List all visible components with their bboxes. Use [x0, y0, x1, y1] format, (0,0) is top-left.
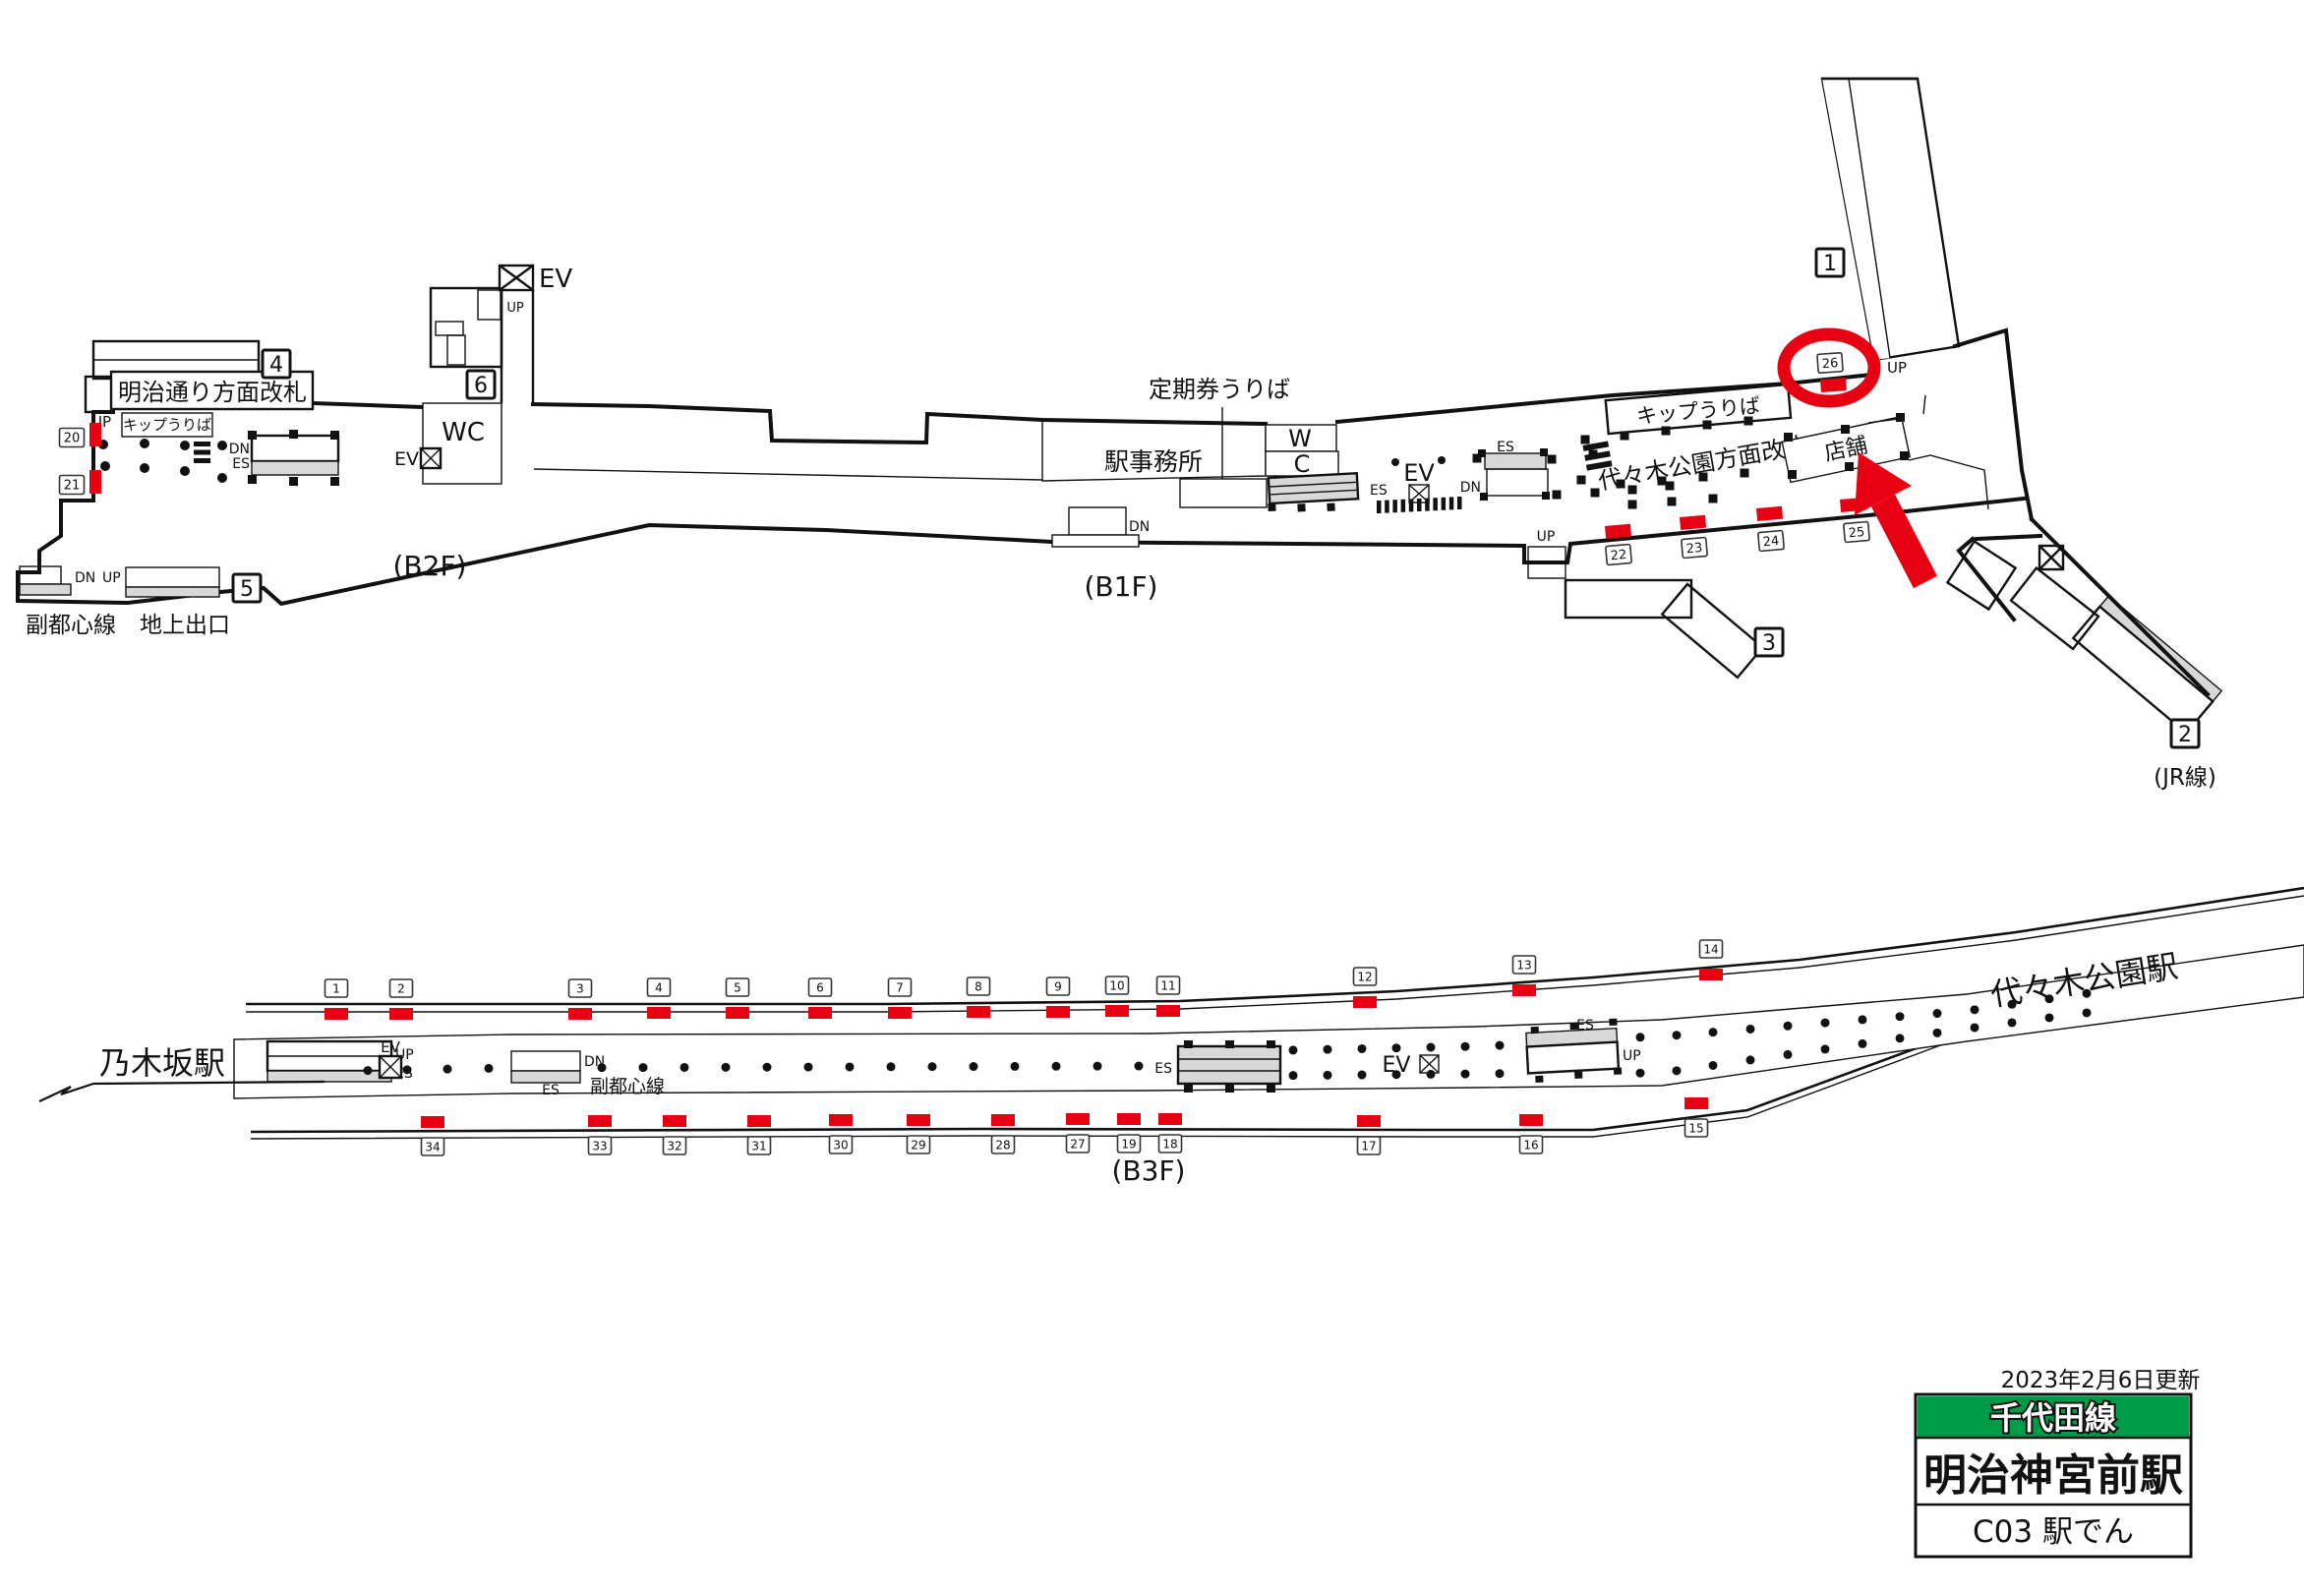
pillar-dot [1673, 1066, 1682, 1075]
faregate-tick [1385, 501, 1389, 513]
pillar-dot [364, 1066, 373, 1075]
b1f-caption: (B1F) [1085, 570, 1158, 603]
exit3-stairs-turn [1662, 584, 1762, 678]
ad-number: 3 [576, 981, 584, 995]
ad-marker-red [808, 1007, 832, 1019]
ad-number: 23 [1685, 541, 1703, 557]
pillar-dot [928, 1062, 937, 1071]
ad-badge: 21 [60, 476, 85, 495]
ad-marker-red [1353, 996, 1377, 1008]
pillar-dot [1933, 1029, 1942, 1037]
ad-badge: 9 [1047, 977, 1070, 995]
pillar-dot [1699, 473, 1708, 482]
pillar-dot [1589, 450, 1598, 459]
pillar-dot [485, 1064, 494, 1073]
b2f-caption: (B2F) [393, 550, 467, 582]
es-label-wc: ES [1370, 483, 1388, 499]
ad-number: 32 [667, 1139, 681, 1153]
up-label-exit6: UP [506, 301, 524, 316]
pillar-dot [1859, 1015, 1867, 1024]
ad-badge: 13 [1513, 956, 1536, 974]
ad-badge: 24 [1758, 530, 1785, 551]
ad-badge: 32 [664, 1137, 686, 1154]
es-label-b2f: ES [232, 456, 250, 472]
ad-marker-red [1046, 1006, 1070, 1018]
ad-marker-red [907, 1114, 930, 1126]
exit-badge-e5: 5 [233, 574, 261, 602]
pillar-dot [180, 466, 190, 476]
ev-label-platform-left: EV [381, 1038, 400, 1056]
exit-number: 5 [240, 577, 254, 602]
pillar-dot [1358, 1044, 1367, 1053]
pillar-dot [1553, 491, 1562, 500]
ad-badge: 8 [968, 977, 990, 995]
pillar-dot [1496, 1069, 1505, 1078]
ad-number: 17 [1361, 1139, 1376, 1153]
ad-marker-red [829, 1114, 853, 1126]
ad-badge: 23 [1682, 537, 1708, 558]
pillar-dot [1621, 432, 1629, 441]
ad-badge: 10 [1106, 976, 1129, 994]
station-ad-map: 明治通り方面改札 UP キップうりば DN ES WC EV [0, 0, 2304, 1592]
pillar-dot [1666, 482, 1675, 491]
ev-box-wc [421, 448, 441, 468]
pillar-dot [639, 1063, 648, 1072]
pillar-dot [1703, 421, 1712, 430]
pillar-dot [2083, 1008, 2092, 1017]
ad-marker-red [747, 1115, 771, 1127]
pillar-dot [970, 1062, 978, 1071]
exit-number: 1 [1823, 252, 1837, 276]
pillar-dot [180, 441, 190, 450]
jr-line-label: (JR線) [2154, 765, 2216, 791]
line-name: 千代田線 [1990, 1399, 2116, 1437]
pillar-dot [1709, 495, 1718, 503]
ad-number: 13 [1516, 958, 1531, 972]
ad-number: 33 [592, 1139, 607, 1153]
faregate-tick [1425, 499, 1430, 511]
ad-marker-red [967, 1006, 990, 1018]
exit-badge-e1: 1 [1816, 249, 1844, 276]
ad-number: 34 [425, 1140, 440, 1153]
exit4-stairs-turn [86, 377, 113, 412]
pillar-dot [1581, 436, 1590, 444]
ad-badge: 16 [1520, 1136, 1543, 1153]
up-label-exit3: UP [1537, 529, 1556, 545]
ad-badge: 17 [1358, 1137, 1381, 1154]
ad-badge: 18 [1159, 1135, 1182, 1153]
ad-marker-red [1756, 506, 1783, 521]
b2f-stair-es-block [248, 430, 339, 486]
mid-es-dn-stairs [1478, 448, 1550, 501]
ad-number: 5 [734, 980, 741, 994]
up-label-exit1: UP [1887, 359, 1907, 377]
exit-badge-e4: 4 [263, 350, 290, 378]
ad-marker-red [1512, 984, 1536, 996]
pillar-dot [2008, 1018, 2017, 1027]
faregate-row [1377, 497, 1462, 513]
pillar-dot [1461, 1070, 1470, 1079]
pillar-dot [1427, 1042, 1436, 1051]
ad-badge: 20 [60, 429, 85, 447]
ad-number: 10 [1109, 978, 1124, 992]
pillar-dot [1358, 1071, 1367, 1080]
ad-badge: 6 [809, 978, 832, 996]
map-canvas: 明治通り方面改札 UP キップうりば DN ES WC EV [0, 0, 2304, 1592]
ad-marker-red [421, 1116, 444, 1128]
ev-label-wc: EV [394, 448, 419, 470]
pillar-dot [1591, 489, 1600, 498]
ad-badge: 22 [1606, 544, 1632, 564]
pillar-dot [680, 1063, 689, 1072]
pillar-dot [1636, 1033, 1645, 1041]
ev-box-platform-left [380, 1056, 401, 1078]
pillar-dot [1784, 1050, 1793, 1059]
ad-badge: 28 [992, 1136, 1015, 1153]
pillar-dot [1741, 469, 1749, 478]
meiji-gate-label: 明治通り方面改札 [118, 379, 307, 406]
station-sign: 2023年2月6日更新 千代田線 明治神宮前駅 C03 駅でん [1916, 1368, 2200, 1557]
pillar-dot [1673, 1031, 1682, 1039]
ad-number: 6 [816, 980, 824, 994]
exit3-stairs-run [1566, 580, 1691, 618]
ad-marker-red [588, 1115, 612, 1127]
exit2-structure [1947, 519, 2221, 733]
pillar-dot [1391, 458, 1399, 466]
ad-badge: 12 [1354, 968, 1377, 985]
ad-marker-red [325, 1008, 348, 1020]
exit-badge-e3: 3 [1755, 628, 1783, 656]
pillar-dot [887, 1062, 896, 1071]
ad-number: 18 [1162, 1137, 1177, 1151]
ad-badge: 4 [648, 978, 671, 996]
exit-number: 4 [269, 353, 283, 378]
up-label-platform-right: UP [1623, 1048, 1641, 1064]
ad-number: 28 [995, 1138, 1010, 1152]
ad-number: 31 [751, 1139, 766, 1153]
pillar-dot [1709, 1061, 1718, 1070]
ad-number: 8 [975, 979, 982, 993]
ad-number: 1 [332, 981, 340, 995]
ad-marker-red [991, 1114, 1015, 1126]
ad-badge: 2 [390, 979, 413, 997]
ticket-office-left-label: キップうりば [123, 416, 211, 434]
faregate-tick [1401, 500, 1406, 512]
ad-number: 29 [911, 1138, 925, 1152]
exit-number: 3 [1762, 631, 1776, 656]
ad-number: 9 [1054, 979, 1062, 993]
pillar-dot [1744, 417, 1753, 426]
ad-number: 14 [1703, 942, 1718, 956]
pillar-dot [1135, 1062, 1144, 1071]
ad-number: 11 [1160, 978, 1175, 992]
fukutoshin-label-platform: 副都心線 [590, 1076, 665, 1097]
pillar-dot [1461, 1042, 1470, 1051]
pillar-dot [1427, 1070, 1436, 1079]
ad-marker-red [647, 1007, 671, 1019]
ad-number: 26 [1821, 356, 1839, 372]
commuter-pass-booth [1180, 479, 1267, 507]
b2f-gate-bars [194, 442, 210, 463]
exit1-stairs [1822, 79, 1959, 360]
pillar-dot [1971, 1023, 1979, 1032]
ad-marker-red [1519, 1114, 1543, 1126]
ad-marker-red [1680, 515, 1706, 530]
pillar-dot [1658, 477, 1667, 486]
b2f-b1f-divider [534, 469, 1042, 480]
pillar-dot [1628, 501, 1637, 509]
concourse-diagram: 明治通り方面改札 UP キップうりば DN ES WC EV [18, 79, 2221, 791]
c-label: C [1294, 450, 1311, 478]
pillar-dot [1289, 1071, 1298, 1080]
pillar-dot [1577, 476, 1586, 485]
updated-date: 2023年2月6日更新 [2001, 1368, 2201, 1393]
ad-number: 24 [1762, 534, 1780, 550]
pillar-dot [598, 1063, 607, 1072]
pillar-dot [1324, 1071, 1332, 1080]
pillar-dot [1821, 1019, 1830, 1028]
fukutoshin-label-concourse: 副都心線 [26, 613, 116, 638]
ad-badge: 34 [422, 1138, 444, 1155]
ad-badge: 30 [830, 1136, 853, 1153]
pillar-dot [1896, 1012, 1905, 1021]
ad-number: 25 [1848, 525, 1865, 541]
ad-number: 19 [1121, 1137, 1136, 1151]
dn-label-exit5: DN [75, 570, 95, 586]
exit-number: 6 [474, 374, 488, 398]
pillar-dot [1662, 427, 1671, 436]
pillar-dot [1392, 1043, 1401, 1052]
platform-mid-escalator [1178, 1040, 1280, 1093]
ad-marker-red [726, 1007, 749, 1019]
ad-number: 7 [896, 980, 904, 994]
commuter-pass-label: 定期券うりば [1149, 376, 1290, 403]
pillar-dot [1628, 486, 1637, 495]
pillar-dot [1617, 480, 1625, 489]
pillar-dot [1746, 1025, 1755, 1034]
ad-number: 30 [833, 1138, 848, 1152]
pillar-dot [443, 1065, 452, 1074]
es-label-platform-right: ES [1576, 1018, 1594, 1034]
pillar-dot [1473, 454, 1482, 463]
pillar-dot [1784, 1022, 1793, 1031]
wall-left [18, 412, 2024, 604]
ad-marker-red [389, 1008, 413, 1020]
ad-marker-red [1156, 1005, 1180, 1017]
ev-label-exit6: EV [539, 265, 572, 294]
faregate-tick [1449, 497, 1454, 509]
wc-escalator [1267, 473, 1359, 514]
pillar-dot [100, 461, 110, 471]
pillar-dot [1324, 1045, 1332, 1054]
ad-badge: 29 [908, 1136, 930, 1153]
dn-label-mid: DN [1460, 480, 1481, 496]
pillar-dot [1011, 1062, 1020, 1071]
pillar-dot [1052, 1062, 1061, 1071]
faregate-tick [1377, 501, 1382, 513]
pillar-dot [1289, 1045, 1298, 1054]
pillar-dot [140, 463, 149, 473]
ad-marker-red [1117, 1113, 1141, 1125]
es-label-mid: ES [1497, 440, 1514, 455]
up-label-exit5: UP [102, 570, 121, 586]
ad-badge: 3 [569, 979, 592, 997]
ad-badge: 33 [589, 1137, 612, 1154]
faregate-tick [1442, 498, 1447, 510]
pillar-dot [1548, 455, 1557, 464]
ad-marker-red [1605, 524, 1631, 539]
ad-number: 16 [1523, 1138, 1538, 1152]
ad-badge: 5 [727, 978, 749, 996]
ad-number: 22 [1610, 548, 1627, 563]
pillar-dot [217, 441, 227, 450]
ad-marker-red [1105, 1005, 1129, 1017]
ev-box-exit6 [500, 266, 533, 290]
pillar-dot [1709, 1028, 1718, 1036]
ad-marker-red [89, 423, 101, 446]
pillar-dot [2045, 994, 2054, 1003]
dn-label-office: DN [1129, 519, 1150, 535]
station-office-label: 駅事務所 [1104, 447, 1203, 476]
ad-marker-red [1820, 378, 1847, 392]
nogizaka-label: 乃木坂駅 [99, 1044, 225, 1082]
pillar-dot [1821, 1044, 1830, 1053]
pillar-dot [2045, 1013, 2054, 1022]
dn-label-b2f: DN [229, 442, 250, 457]
ad-marker-red [663, 1115, 686, 1127]
ad-marker-red [1066, 1113, 1090, 1125]
office-stairs [1052, 507, 1139, 547]
pillar-dot [2083, 989, 2092, 998]
pillar-dot [1636, 1069, 1645, 1078]
pillar-dot [217, 473, 227, 483]
faregate-tick [1433, 498, 1438, 510]
es-label-platform-mid: ES [1154, 1061, 1172, 1077]
ad-number: 21 [64, 479, 81, 494]
ad-number: 2 [397, 981, 405, 995]
pillar-dot [763, 1063, 772, 1072]
ad-number: 20 [64, 432, 81, 446]
b3f-caption: (B3F) [1112, 1154, 1186, 1187]
pillar-dot [1438, 456, 1446, 464]
exit-badge-e2: 2 [2171, 720, 2199, 747]
ad-marker-red [1357, 1115, 1381, 1127]
pillar-dot [1859, 1039, 1867, 1048]
faregate-tick [1457, 497, 1462, 509]
station-code-row: C03 駅でん [1973, 1514, 2134, 1550]
ad-marker-red [568, 1008, 592, 1020]
pillar-dot [2008, 1000, 2017, 1009]
pillar-dot [1971, 1005, 1979, 1014]
ad-badge: 7 [889, 978, 912, 996]
pillar-dot [1668, 498, 1677, 506]
pillar-dot [804, 1063, 813, 1072]
ad-badge: 15 [1685, 1119, 1708, 1137]
pillar-dot [846, 1062, 855, 1071]
es-label-fukutoshin: ES [542, 1083, 560, 1098]
ad-number: 4 [655, 980, 663, 994]
faregate-tick [1392, 500, 1397, 512]
station-name: 明治神宮前駅 [1923, 1450, 2183, 1501]
ad-badge: 14 [1700, 940, 1723, 958]
exit-badge-e6: 6 [467, 371, 495, 398]
ad-badge: 26 [1817, 353, 1843, 374]
ad-badge: 31 [748, 1137, 771, 1154]
ad-badge: 1 [325, 979, 348, 997]
ad-number: 27 [1070, 1137, 1085, 1151]
ground-exit-label: 地上出口 [140, 613, 230, 638]
ad-number: 12 [1357, 970, 1372, 983]
pillar-dot [403, 1065, 412, 1074]
pillar-dot [140, 439, 149, 448]
wall-top [313, 330, 2032, 519]
ad-marker-red [1684, 1097, 1708, 1109]
pillar-dot [1933, 1009, 1942, 1018]
faregate-tick [1409, 499, 1414, 511]
wc-label: WC [442, 418, 485, 447]
ad-badge: 11 [1157, 976, 1180, 994]
ad-badge: 27 [1067, 1135, 1090, 1153]
exit-number: 2 [2178, 723, 2192, 747]
w-label: W [1288, 425, 1312, 452]
ad-marker-red [888, 1007, 912, 1019]
ad-marker-red [1699, 969, 1723, 980]
pillar-dot [1093, 1062, 1102, 1071]
ev-label-center: EV [1403, 459, 1435, 487]
pillar-dot [722, 1063, 731, 1072]
pillar-dot [1896, 1034, 1905, 1042]
pillar-dot [1746, 1055, 1755, 1064]
pillar-dot [1496, 1041, 1505, 1050]
ad-number: 15 [1688, 1121, 1703, 1135]
ad-badge: 19 [1118, 1135, 1141, 1153]
ad-marker-red [89, 470, 101, 494]
pillar-dot [1392, 1070, 1401, 1079]
ad-marker-red [1158, 1113, 1182, 1125]
faregate-tick [1417, 499, 1422, 511]
ad-badge: 25 [1844, 521, 1870, 542]
